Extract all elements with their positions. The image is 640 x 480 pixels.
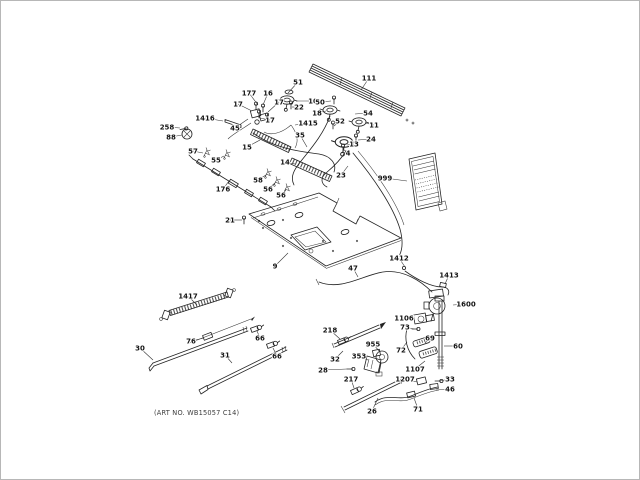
air-shutter-bracket-14	[290, 158, 333, 182]
diagram-page: 5110177161717172214164515141535111501852…	[0, 0, 640, 480]
part-number-labels: 5110177161717172214164515141535111501852…	[135, 74, 476, 415]
part-label-50: 50	[315, 98, 325, 106]
part-label-217: 217	[344, 375, 359, 383]
part-label-66: 66	[255, 334, 265, 342]
part-label-28: 28	[318, 366, 328, 374]
part-label-33: 33	[445, 375, 455, 383]
part-label-23: 23	[336, 171, 346, 179]
part-label-32: 32	[330, 355, 340, 363]
part-label-1416: 1416	[195, 114, 215, 122]
part-label-1417: 1417	[178, 292, 198, 300]
panel-screw-21	[242, 216, 245, 224]
part-label-71: 71	[413, 405, 423, 413]
part-label-21: 21	[225, 216, 235, 224]
part-label-999: 999	[378, 174, 393, 182]
part-label-1107: 1107	[405, 365, 425, 373]
gas-tube-47	[316, 272, 432, 292]
part-label-69: 69	[425, 334, 435, 342]
orifice-66a	[250, 324, 264, 333]
part-label-52: 52	[335, 117, 345, 125]
part-label-57: 57	[188, 147, 198, 155]
part-label-218: 218	[323, 326, 338, 334]
part-label-88: 88	[166, 133, 176, 141]
part-label-72: 72	[396, 346, 406, 354]
part-label-1413: 1413	[439, 271, 459, 279]
part-label-353: 353	[352, 352, 367, 360]
part-label-177: 177	[242, 89, 257, 97]
part-label-176: 176	[216, 185, 231, 193]
part-label-46: 46	[445, 385, 455, 393]
part-label-16: 16	[263, 89, 273, 97]
part-label-31: 31	[220, 351, 230, 359]
part-label-30: 30	[135, 344, 145, 352]
right-burner-chain	[320, 96, 369, 156]
grommet-88	[182, 129, 192, 139]
gas-tubes-upper	[253, 116, 404, 259]
clamp-1207	[416, 377, 426, 385]
part-label-76: 76	[186, 337, 196, 345]
art-number-note: (ART NO. WB15057 C14)	[154, 409, 239, 417]
part-label-24: 24	[366, 135, 376, 143]
part-label-9: 9	[273, 262, 278, 270]
part-label-14: 14	[280, 158, 290, 166]
spec-placard	[409, 153, 447, 211]
part-label-66: 66	[272, 352, 282, 360]
part-label-17: 17	[233, 100, 243, 108]
part-label-1207: 1207	[395, 375, 415, 383]
screw-28	[347, 367, 355, 370]
part-label-47: 47	[348, 264, 358, 272]
burner-tube-30	[149, 326, 248, 371]
air-shutter-bracket-15	[251, 129, 292, 153]
part-label-60: 60	[453, 342, 463, 350]
part-label-45: 45	[230, 124, 240, 132]
part-label-56: 56	[276, 191, 286, 199]
part-label-1600: 1600	[456, 300, 476, 308]
part-label-17: 17	[265, 116, 275, 124]
part-label-51: 51	[293, 78, 303, 86]
part-label-111: 111	[362, 74, 377, 82]
part-label-73: 73	[400, 323, 410, 331]
part-label-56: 56	[263, 185, 273, 193]
part-label-26: 26	[367, 407, 377, 415]
part-label-1415: 1415	[298, 119, 318, 127]
part-label-35: 35	[295, 131, 305, 139]
part-label-1412: 1412	[389, 254, 409, 262]
part-label-13: 13	[349, 140, 359, 148]
part-label-55: 55	[211, 156, 221, 164]
part-label-15: 15	[242, 143, 252, 151]
part-label-4: 4	[346, 149, 351, 157]
part-label-17: 17	[274, 98, 284, 106]
part-label-18: 18	[312, 109, 322, 117]
part-label-58: 58	[253, 176, 263, 184]
part-label-22: 22	[294, 103, 304, 111]
bracket-353	[364, 356, 381, 373]
part-label-11: 11	[369, 121, 379, 129]
parts-diagram-canvas: 5110177161717172214164515141535111501852…	[1, 1, 639, 479]
manifold-rail	[309, 64, 414, 124]
part-label-54: 54	[363, 109, 373, 117]
part-label-1106: 1106	[394, 314, 414, 322]
burner-box-panel	[249, 193, 401, 269]
part-label-258: 258	[160, 123, 175, 131]
orifice-66b	[266, 340, 280, 349]
part-label-955: 955	[366, 340, 381, 348]
